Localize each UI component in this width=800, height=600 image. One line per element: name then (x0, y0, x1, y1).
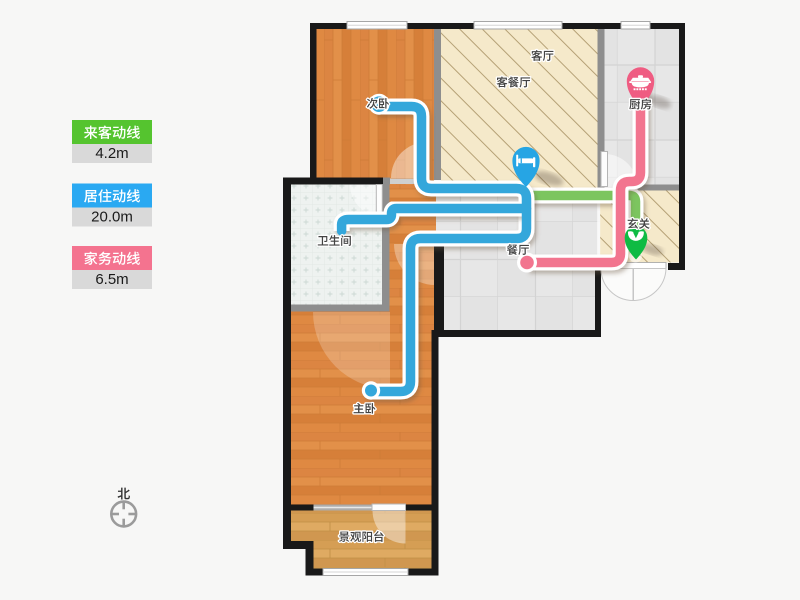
svg-text:6.5m: 6.5m (95, 271, 128, 288)
svg-text:4.2m: 4.2m (95, 145, 128, 162)
svg-text:20.0m: 20.0m (91, 208, 133, 225)
